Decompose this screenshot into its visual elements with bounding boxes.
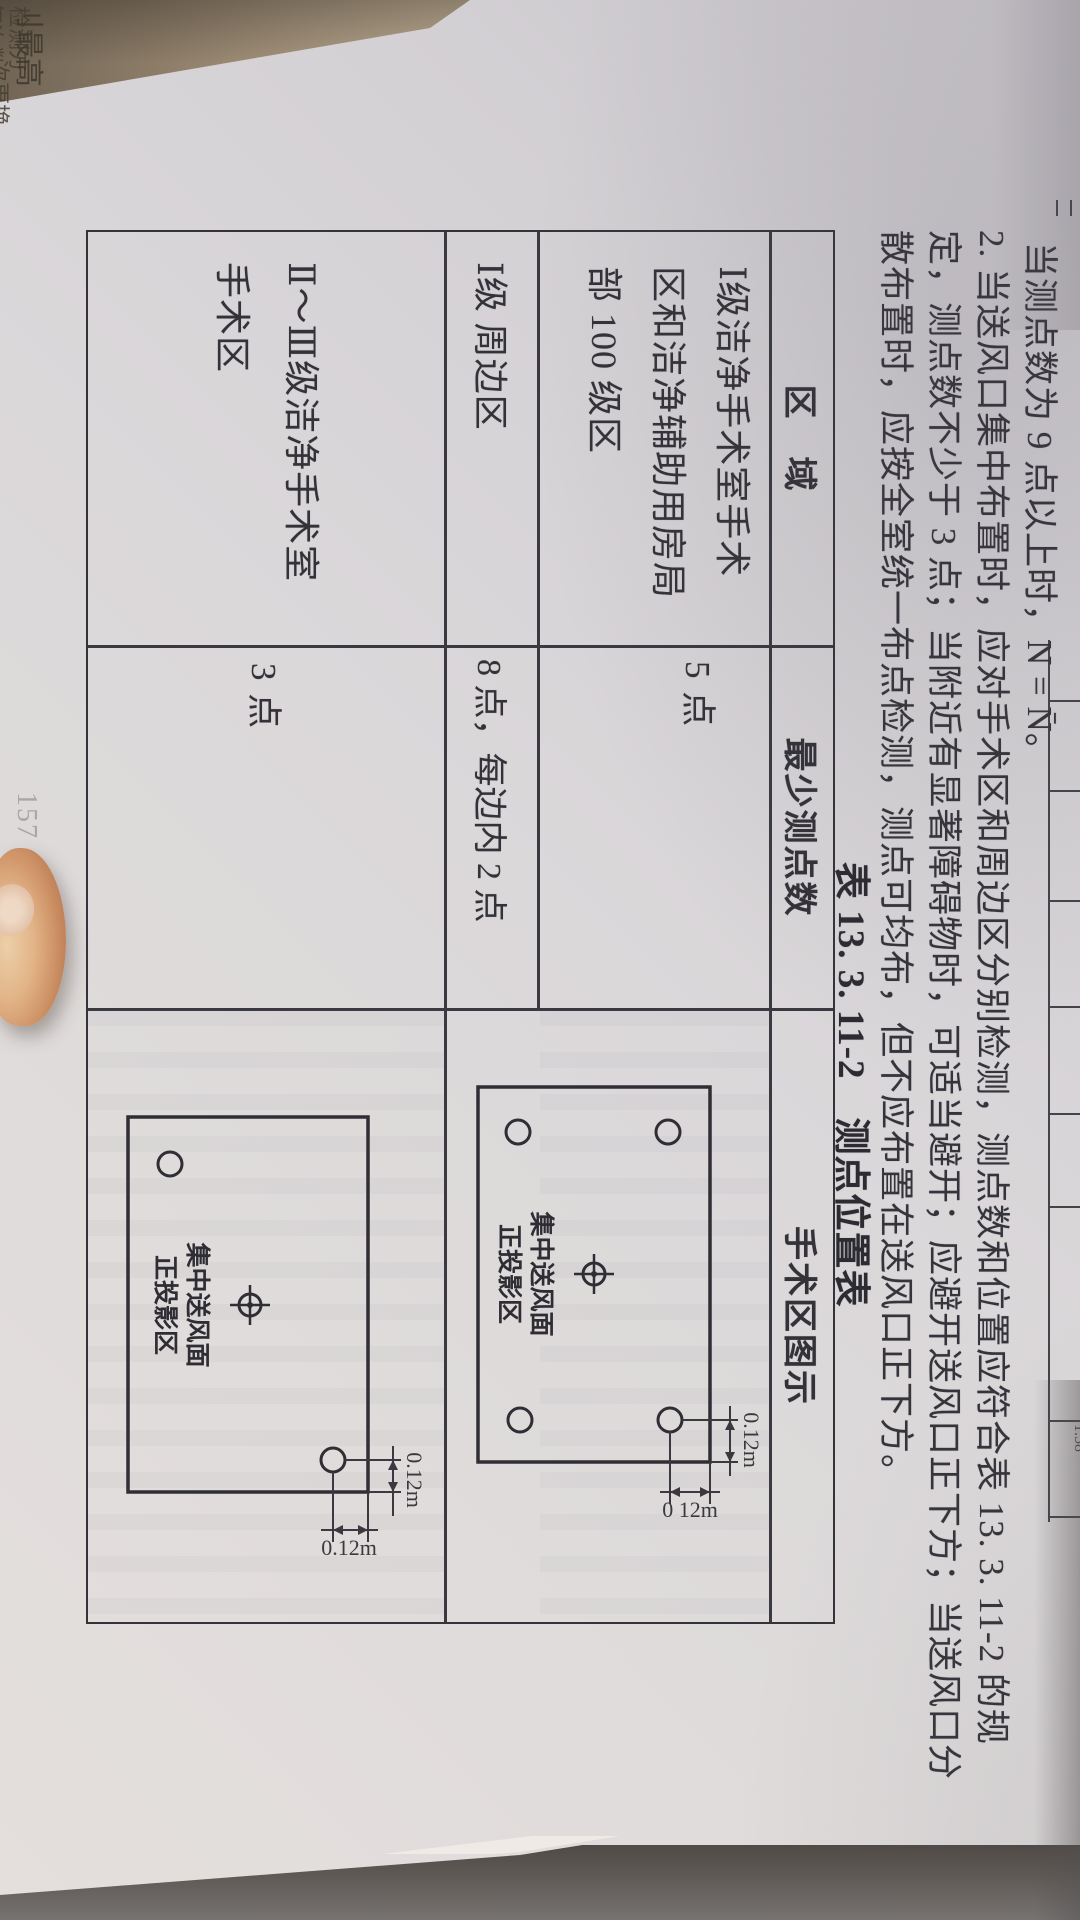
note-line-2: 2. 当送风口集中布置时，应对手术区和周边区分别检测，测点数和位置应符合表 13… <box>969 230 1020 1745</box>
measurement-point-table: 区 域 最少测点数 手术区图示 Ⅰ级洁净手术室手术区和洁净辅助用房局部 100 … <box>86 230 835 1624</box>
dimension-label-right: 0.12m <box>321 1535 377 1560</box>
table-line <box>1050 1113 1080 1115</box>
table-row-3-points: 3 点 <box>88 647 445 1024</box>
header-region: 区 域 <box>772 232 833 645</box>
diagram-5-points-class1: 集中送风面 正投影区 0.12m 0 12m <box>447 1010 770 1622</box>
dimension-label-right: 0 12m <box>662 1497 718 1522</box>
table-row-1-region: Ⅰ级洁净手术室手术区和洁净辅助用房局部 100 级区 <box>534 232 770 679</box>
measurement-point-circle <box>508 1408 532 1432</box>
dimension-label-top: 0.12m <box>739 1412 764 1468</box>
table-row-2-region: Ⅰ级 周边区 <box>447 232 538 675</box>
dimension-lines <box>321 1446 401 1542</box>
region-text: Ⅰ级洁净手术室手术区和洁净辅助用房局部 100 级区 <box>572 266 764 611</box>
book-page: 1.58 当测点数为 9 点以上时，N = N̄。 2. 当送风口集中布置时，应… <box>0 0 1080 1920</box>
measurement-point-circle <box>158 1152 182 1176</box>
header-min-points: 最少测点数 <box>772 647 833 1008</box>
table-line <box>1050 1006 1080 1008</box>
adjacent-page-text-fragment: 刂最高 <box>10 0 52 87</box>
measurement-point-circle <box>321 1448 345 1472</box>
table-row-2-points: 8 点，每边内 2 点 <box>447 647 538 1020</box>
table-row-3-region: Ⅱ～Ⅲ级洁净手术室手术区 <box>88 232 445 675</box>
table-line <box>1050 1206 1080 1208</box>
measurement-point-circle <box>506 1120 530 1144</box>
measurement-point-circle <box>658 1408 682 1432</box>
right-edge-shadow <box>1034 1380 1080 1920</box>
center-point-crosshair <box>574 1254 614 1294</box>
diagram-3-points-class2-3: 集中送风面 正投影区 0.12m 0.12m <box>88 1010 445 1622</box>
fingernail <box>0 880 39 940</box>
table-caption: 表 13. 3. 11-2 测点位置表 <box>828 862 882 1308</box>
dimension-label-top: 0.12m <box>402 1452 427 1508</box>
center-point-crosshair <box>230 1285 270 1325</box>
note-line-3: 定，测点数不少于 3 点；当附近有显著障碍物时，可适当避开；应避开送风口正下方；… <box>921 230 972 1780</box>
book-photo: 1.58 当测点数为 9 点以上时，N = N̄。 2. 当送风口集中布置时，应… <box>0 0 1080 1920</box>
projection-zone-label-line2: 正投影区 <box>495 1224 524 1324</box>
table-line <box>1050 790 1080 792</box>
region-text: Ⅱ～Ⅲ级洁净手术室手术区 <box>198 262 335 607</box>
page-number: 157 <box>10 792 42 840</box>
projection-zone-label-line1: 集中送风面 <box>527 1210 556 1336</box>
projection-zone-label-line2: 正投影区 <box>151 1255 180 1355</box>
top-right-shadow <box>990 0 1080 330</box>
table-line <box>1050 900 1080 902</box>
projection-zone-label-line1: 集中送风面 <box>183 1241 212 1367</box>
measurement-point-circle <box>656 1120 680 1144</box>
header-diagram: 手术区图示 <box>772 1010 833 1622</box>
dimension-lines <box>660 1406 738 1504</box>
